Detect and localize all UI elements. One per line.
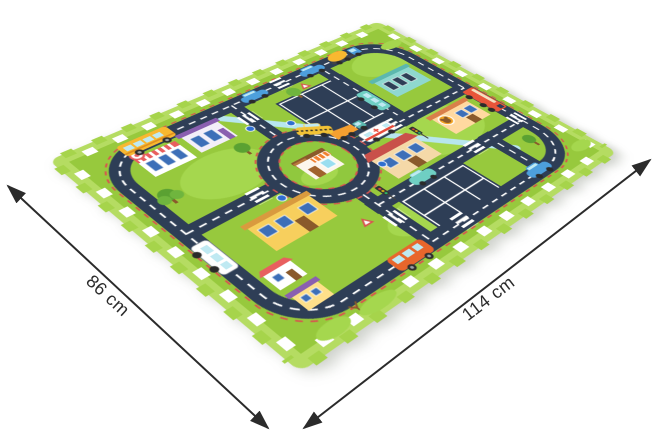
play-mat-illustration bbox=[40, 18, 624, 380]
play-mat bbox=[40, 18, 624, 380]
dimension-label-width: 114 cm bbox=[458, 272, 518, 325]
product-image: 86 cm 114 cm bbox=[0, 0, 660, 434]
dimension-label-depth: 86 cm bbox=[82, 271, 134, 321]
